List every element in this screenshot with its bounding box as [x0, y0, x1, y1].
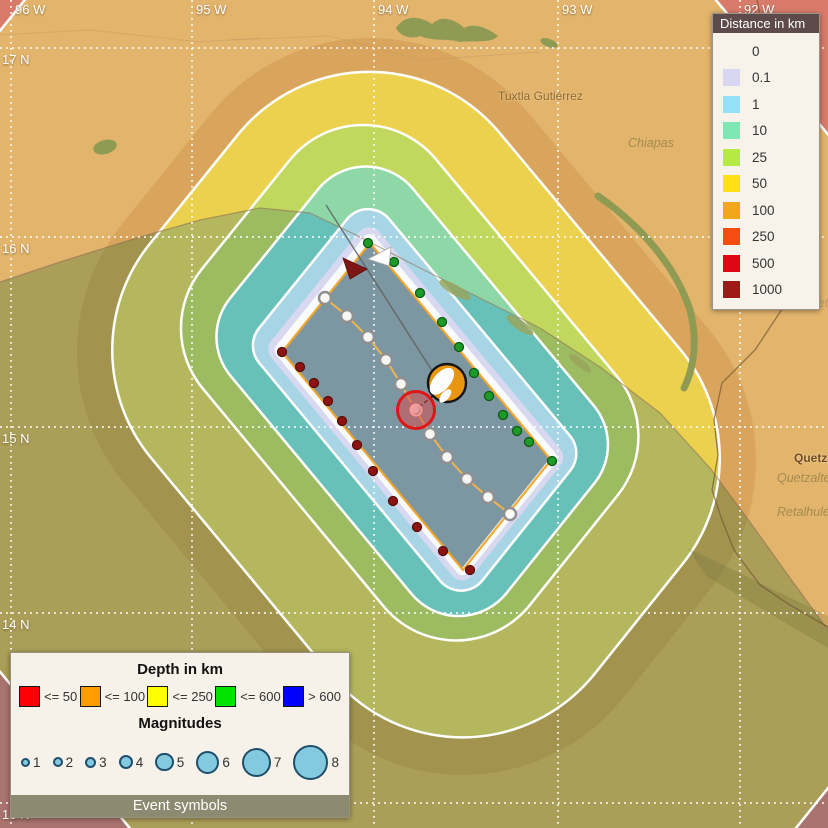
distance-swatch-label: 1: [752, 97, 760, 112]
depth-color-box: [147, 686, 168, 707]
distance-swatch-label: 100: [752, 203, 775, 218]
distance-legend-panel: Distance in km 00.111025501002505001000: [712, 13, 820, 310]
magnitude-circle: [21, 758, 30, 767]
distance-swatch-label: 250: [752, 229, 775, 244]
distance-swatch-label: 0: [752, 44, 760, 59]
distance-legend-item: 25: [713, 144, 819, 171]
event-symbols-title-bar[interactable]: Event symbols: [11, 795, 349, 817]
depth-color-box: [215, 686, 236, 707]
distance-swatch-label: 10: [752, 123, 767, 138]
distance-swatch-label: 0.1: [752, 70, 771, 85]
magnitude-legend-item: 4: [119, 755, 144, 770]
distance-swatch: [723, 228, 740, 245]
distance-swatch: [723, 149, 740, 166]
depth-color-box: [19, 686, 40, 707]
distance-legend-title-bar[interactable]: Distance in km: [713, 14, 819, 33]
depth-legend-title: Depth in km: [11, 661, 349, 678]
depth-legend-item: <= 600: [215, 686, 281, 707]
distance-swatch: [723, 96, 740, 113]
magnitude-legend-item: 7: [242, 748, 282, 777]
depth-legend-row: <= 50<= 100<= 250<= 600> 600: [11, 686, 349, 707]
distance-legend-item: 1000: [713, 277, 819, 304]
magnitude-legend-item: 1: [21, 755, 41, 770]
magnitude-legend-item: 2: [53, 755, 74, 770]
distance-swatch-label: 1000: [752, 282, 782, 297]
distance-legend-item: 50: [713, 171, 819, 198]
magnitude-circle: [196, 751, 219, 774]
magnitude-circle: [242, 748, 271, 777]
magnitude-circle: [53, 757, 63, 767]
depth-color-box: [283, 686, 304, 707]
magnitude-circle: [155, 753, 174, 772]
distance-swatch: [723, 255, 740, 272]
depth-legend-item: <= 50: [19, 686, 77, 707]
magnitude-circle: [293, 745, 328, 780]
magnitude-legend-item: 5: [155, 753, 184, 772]
distance-legend-item: 100: [713, 197, 819, 224]
depth-legend-item: > 600: [283, 686, 341, 707]
distance-legend-item: 0: [713, 38, 819, 65]
magnitudes-title: Magnitudes: [11, 715, 349, 732]
distance-swatch: [723, 69, 740, 86]
distance-legend-item: 0.1: [713, 65, 819, 92]
distance-swatch-label: 25: [752, 150, 767, 165]
magnitude-legend-item: 3: [85, 755, 107, 770]
depth-legend-item: <= 250: [147, 686, 213, 707]
distance-swatch: [723, 122, 740, 139]
distance-swatch-label: 50: [752, 176, 767, 191]
distance-legend-body: 00.111025501002505001000: [713, 33, 819, 309]
distance-legend-item: 10: [713, 118, 819, 145]
map-viewport[interactable]: 96 W95 W94 W93 W92 W17 N16 N15 N14 N13 N…: [0, 0, 828, 828]
event-symbols-panel: Depth in km <= 50<= 100<= 250<= 600> 600…: [10, 652, 350, 818]
magnitude-legend-item: 6: [196, 751, 230, 774]
epicenter-circle[interactable]: [398, 392, 435, 429]
distance-legend-item: 500: [713, 250, 819, 277]
distance-swatch: [723, 281, 740, 298]
distance-swatch-label: 500: [752, 256, 775, 271]
magnitude-circle: [119, 755, 133, 769]
distance-swatch: [723, 175, 740, 192]
distance-swatch: [723, 202, 740, 219]
magnitudes-row: 12345678: [11, 742, 349, 782]
magnitude-legend-item: 8: [293, 745, 339, 780]
distance-legend-item: 1: [713, 91, 819, 118]
depth-color-box: [80, 686, 101, 707]
depth-legend-item: <= 100: [80, 686, 146, 707]
magnitude-circle: [85, 757, 96, 768]
distance-legend-item: 250: [713, 224, 819, 251]
